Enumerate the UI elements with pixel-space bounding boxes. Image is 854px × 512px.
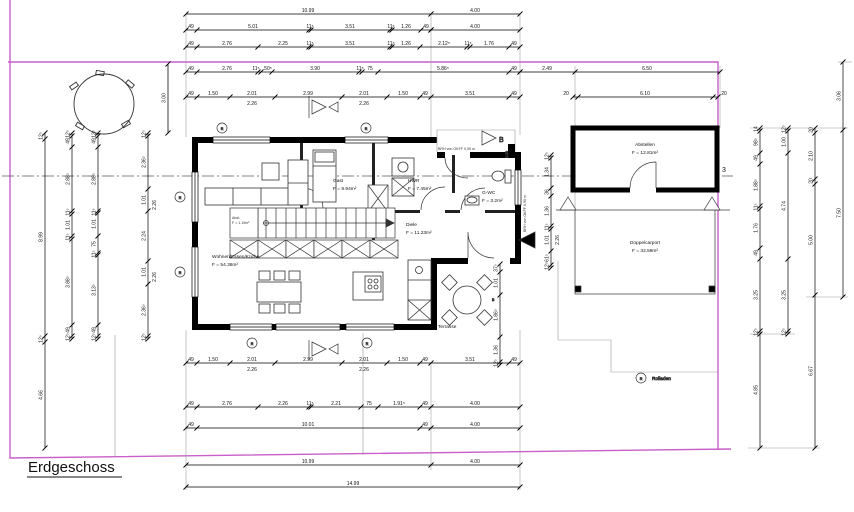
svg-text:6.67: 6.67 [809,366,815,376]
svg-text:11⁵: 11⁵ [306,41,313,47]
room-abstellen-area: F = 12.81m² [632,150,658,156]
svg-text:12⁵: 12⁵ [494,359,500,367]
svg-text:1.00: 1.00 [782,137,788,147]
svg-text:2.01: 2.01 [247,357,257,363]
svg-text:12⁵: 12⁵ [66,130,72,138]
svg-text:1.50: 1.50 [208,91,218,97]
storage-room [573,128,717,193]
svg-text:14.99: 14.99 [347,481,360,487]
svg-text:10.01: 10.01 [302,422,315,428]
svg-text:3.25: 3.25 [782,290,788,300]
svg-text:11⁵: 11⁵ [754,203,760,210]
section-cut-bottom [309,340,338,360]
svg-text:11⁵: 11⁵ [306,24,313,30]
brh-note-top: BRH von OKFF 0,95 m [438,147,475,151]
svg-text:1.26: 1.26 [401,24,411,30]
legend-symbol: R [640,377,643,381]
room-wohnen-label: Wohnen/Essen/Küche [212,254,260,260]
room-hwr-label: HWR [408,178,420,184]
svg-text:3.06: 3.06 [837,91,843,101]
svg-text:10.99: 10.99 [302,8,315,14]
tree-icon [70,70,135,134]
svg-text:3.00: 3.00 [162,93,168,103]
axis-label: 3 [722,167,726,174]
room-carport-area: F = 32.59m² [632,248,658,254]
svg-text:11⁵: 11⁵ [306,401,313,407]
guest-bed [313,150,336,202]
svg-text:1.76: 1.76 [484,41,494,47]
svg-text:2.36⁵: 2.36⁵ [142,304,148,316]
svg-text:2.25: 2.25 [278,41,288,47]
window-left-lower [192,247,198,297]
svg-text:7.50: 7.50 [837,208,843,218]
svg-text:4.00: 4.00 [470,401,480,407]
room-abst-area: F = 1.19m² [232,221,250,225]
shutter-r: R [366,342,369,346]
room-abstellen-label: Abstellen [635,142,655,148]
svg-text:1.86⁵: 1.86⁵ [494,309,500,321]
svg-text:75: 75 [92,241,98,247]
svg-text:11⁵: 11⁵ [356,66,363,72]
svg-text:6.50: 6.50 [642,66,652,72]
svg-text:3.90: 3.90 [310,66,320,72]
svg-text:12⁵: 12⁵ [142,130,148,138]
section-cut-top [309,96,338,118]
svg-text:4.00: 4.00 [470,459,480,465]
coffee-table [262,163,279,180]
window-east-gwc [515,170,521,205]
brh-note-side: BRH von OKFF 0,95 m [523,195,527,232]
svg-text:37⁵: 37⁵ [494,264,500,272]
svg-text:20: 20 [809,127,815,133]
entrance-door-arc [445,158,468,178]
svg-text:4.66: 4.66 [39,390,45,400]
svg-text:1.01: 1.01 [66,220,72,230]
svg-text:1.76: 1.76 [754,223,760,233]
svg-text:1.50: 1.50 [398,91,408,97]
section-b-label: B [499,137,504,144]
svg-text:4.00: 4.00 [470,24,480,30]
room-gast-area: F = 9.94m² [333,186,357,192]
svg-text:75: 75 [366,401,372,407]
svg-text:49: 49 [511,41,517,47]
sofa [205,160,308,205]
svg-text:12⁵: 12⁵ [39,132,45,140]
svg-text:36: 36 [545,189,551,195]
svg-text:49: 49 [511,357,517,363]
room-gwc-area: F = 3.2m² [482,198,503,204]
svg-text:2.24: 2.24 [142,231,148,241]
svg-text:11⁵: 11⁵ [387,41,394,47]
wc-toilet [492,170,511,183]
svg-text:2.76: 2.76 [222,401,232,407]
svg-text:2.01: 2.01 [247,91,257,97]
svg-text:5.00: 5.00 [809,235,815,245]
window-left-upper [192,172,198,222]
svg-text:49: 49 [422,401,428,407]
svg-text:49: 49 [188,422,194,428]
svg-text:2.88⁵: 2.88⁵ [66,173,72,185]
svg-text:12⁵: 12⁵ [92,333,98,341]
svg-text:12⁵: 12⁵ [782,125,788,133]
svg-text:3.51: 3.51 [465,91,475,97]
svg-text:11⁵: 11⁵ [66,233,72,240]
svg-text:2.01: 2.01 [359,91,369,97]
svg-text:11⁵: 11⁵ [92,250,98,257]
staircase [230,208,395,238]
svg-text:1.01: 1.01 [545,235,551,245]
svg-text:2.26: 2.26 [247,367,257,373]
svg-text:2.26: 2.26 [247,101,257,107]
svg-text:1.34: 1.34 [545,167,551,177]
svg-text:2.26: 2.26 [359,101,369,107]
svg-text:2.76: 2.76 [222,66,232,72]
svg-text:20: 20 [563,91,569,97]
svg-text:61⁵: 61⁵ [545,254,551,262]
svg-text:1.50: 1.50 [208,357,218,363]
svg-text:2.26: 2.26 [152,272,158,282]
svg-text:3.51: 3.51 [345,41,355,47]
svg-text:49: 49 [422,91,428,97]
svg-text:49: 49 [188,66,194,72]
svg-text:49: 49 [754,250,760,256]
svg-text:1.91⁵: 1.91⁵ [393,401,405,407]
terrace-paving-edge [558,261,718,372]
page-title: Erdgeschoss [28,459,115,476]
shutter-r: R [221,127,224,131]
svg-text:3.51: 3.51 [465,357,475,363]
svg-text:5.01: 5.01 [248,24,258,30]
svg-text:8.99: 8.99 [39,232,45,242]
svg-text:1.01: 1.01 [142,267,148,277]
svg-text:11⁵: 11⁵ [66,208,72,215]
drawing-title: Erdgeschoss [27,459,122,477]
shutter-r: R [179,271,182,275]
floor-plan-page: 3 [0,0,854,512]
svg-text:49: 49 [422,422,428,428]
shutter-r: R [251,342,254,346]
view-arrow [519,232,535,248]
svg-text:2.12⁵: 2.12⁵ [438,41,450,47]
svg-text:50⁵: 50⁵ [264,66,272,72]
svg-text:2.99: 2.99 [303,357,313,363]
svg-text:2.26: 2.26 [152,200,158,210]
room-gast-label: Gast [333,178,344,184]
window-top-gast [345,137,388,143]
svg-text:2.99: 2.99 [303,91,313,97]
svg-text:49: 49 [423,24,429,30]
room-hwr-area: F = 7.45m² [408,186,432,192]
svg-text:1.50: 1.50 [398,357,408,363]
legend-rolladen: R Rolladen [636,373,671,383]
svg-text:11⁵: 11⁵ [464,41,471,47]
svg-text:2.21: 2.21 [331,401,341,407]
svg-text:4.85: 4.85 [754,385,760,395]
svg-text:12⁵: 12⁵ [39,335,45,343]
svg-text:12⁵: 12⁵ [754,328,760,336]
svg-text:12⁵: 12⁵ [66,333,72,341]
room-carport-label: Doppelcarport [630,240,661,246]
shutter-r: R [179,196,182,200]
svg-text:49: 49 [92,138,98,144]
svg-text:12⁵: 12⁵ [545,152,551,160]
svg-text:49: 49 [188,357,194,363]
section-b2-label: B [492,298,495,302]
terrace-table-set [442,275,493,326]
svg-text:1.01: 1.01 [142,195,148,205]
svg-text:75: 75 [367,66,373,72]
kitchen-island [353,272,383,300]
svg-text:3.88⁵: 3.88⁵ [66,276,72,288]
svg-text:49: 49 [188,24,194,30]
svg-text:2.01: 2.01 [359,357,369,363]
svg-text:12⁵: 12⁵ [782,328,788,336]
svg-text:1.88⁵: 1.88⁵ [754,179,760,191]
svg-text:20: 20 [809,178,815,184]
svg-text:11⁵: 11⁵ [545,223,551,230]
svg-text:49: 49 [188,41,194,47]
svg-text:49: 49 [92,327,98,333]
svg-text:4.00: 4.00 [470,8,480,14]
dining-table [257,271,301,313]
room-abst-label: Abst. [232,216,240,220]
svg-text:2.10: 2.10 [809,151,815,161]
svg-text:2.26: 2.26 [555,235,561,245]
room-diele-label: Diele [406,222,417,228]
svg-text:49: 49 [66,327,72,333]
svg-text:3.51: 3.51 [345,24,355,30]
svg-text:4.74: 4.74 [782,201,788,211]
svg-text:49: 49 [754,155,760,161]
svg-text:98⁵: 98⁵ [754,138,760,146]
svg-text:1.36: 1.36 [545,206,551,216]
room-diele-area: F = 11.23m² [406,230,432,236]
terrace-door-arc [468,232,494,258]
dimension-chains: 10.994.00495.0111⁵3.5111⁵1.26494.00492.7… [39,8,846,490]
svg-text:11⁵: 11⁵ [387,24,394,30]
svg-text:1.26: 1.26 [401,41,411,47]
window-bottom-3 [346,324,394,330]
svg-text:12⁵: 12⁵ [545,262,551,270]
svg-text:5.86⁵: 5.86⁵ [437,66,449,72]
svg-text:49: 49 [188,91,194,97]
svg-text:49: 49 [511,66,517,72]
room-gwc-label: G-WC [482,190,496,196]
svg-text:1.01: 1.01 [494,278,500,288]
svg-text:11⁵: 11⁵ [92,208,98,215]
svg-text:2.88⁵: 2.88⁵ [92,173,98,185]
kitchen-counter [408,260,431,320]
section-b-offset: 1.00 [505,151,509,158]
svg-text:10.99: 10.99 [302,459,315,465]
svg-text:3.25: 3.25 [754,290,760,300]
room-wohnen-area: F = 54.36m² [212,262,238,268]
svg-text:20: 20 [721,91,727,97]
window-bottom-1 [230,324,272,330]
svg-text:6.10: 6.10 [640,91,650,97]
room-terrasse-label: Terrasse [438,324,457,330]
svg-text:14: 14 [754,126,760,132]
svg-text:2.76: 2.76 [222,41,232,47]
svg-text:2.26: 2.26 [278,401,288,407]
svg-text:4.00: 4.00 [470,422,480,428]
svg-text:49: 49 [422,357,428,363]
svg-text:2.49: 2.49 [542,66,552,72]
svg-text:49: 49 [66,138,72,144]
svg-text:49: 49 [511,91,517,97]
svg-text:49: 49 [188,401,194,407]
svg-text:3.13⁵: 3.13⁵ [92,284,98,296]
floor-plan-drawing: 3 [0,0,854,512]
window-top-living [213,137,270,143]
svg-text:1.01: 1.01 [92,219,98,229]
legend-label: Rolladen [652,376,671,382]
window-bottom-2 [276,324,340,330]
svg-text:12⁵: 12⁵ [142,333,148,341]
svg-text:1.36: 1.36 [494,345,500,355]
wc-sink [465,196,479,205]
shutter-r: R [365,127,368,131]
svg-text:2.26: 2.26 [359,367,369,373]
svg-text:12⁵: 12⁵ [92,130,98,138]
svg-text:2.36⁵: 2.36⁵ [142,156,148,168]
svg-text:11⁵: 11⁵ [252,66,259,72]
